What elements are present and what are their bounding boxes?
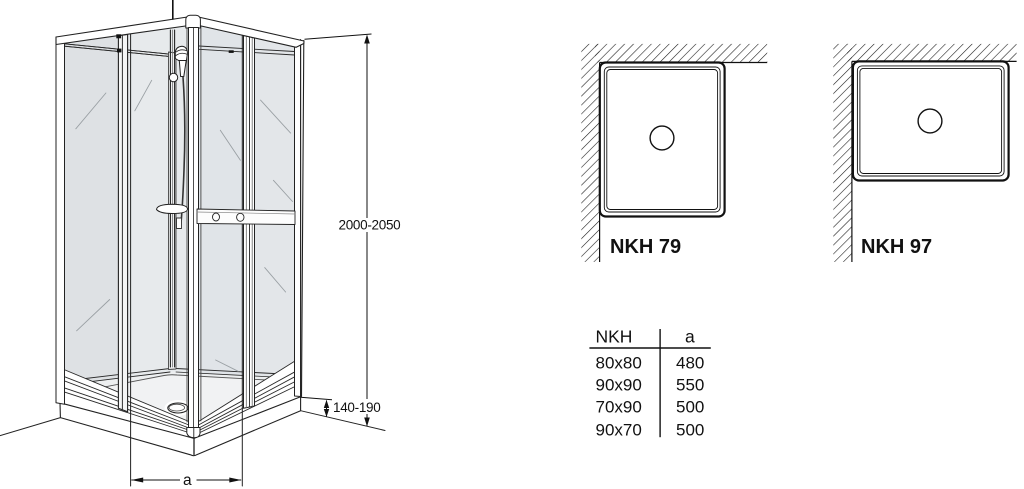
svg-text:140-190: 140-190 xyxy=(333,400,380,415)
svg-text:550: 550 xyxy=(676,375,704,394)
svg-text:a: a xyxy=(183,472,192,489)
svg-text:500: 500 xyxy=(676,397,704,416)
svg-text:a: a xyxy=(685,327,695,347)
svg-text:90x70: 90x70 xyxy=(596,421,642,440)
svg-text:NKH 97: NKH 97 xyxy=(861,236,932,258)
svg-text:2000-2050: 2000-2050 xyxy=(339,218,401,233)
svg-text:500: 500 xyxy=(676,421,704,440)
svg-text:480: 480 xyxy=(676,353,704,372)
svg-text:80x80: 80x80 xyxy=(596,353,642,372)
svg-text:90x90: 90x90 xyxy=(596,375,642,394)
svg-text:NKH 79: NKH 79 xyxy=(610,236,681,258)
svg-text:70x90: 70x90 xyxy=(596,397,642,416)
svg-text:NKH: NKH xyxy=(596,327,633,347)
